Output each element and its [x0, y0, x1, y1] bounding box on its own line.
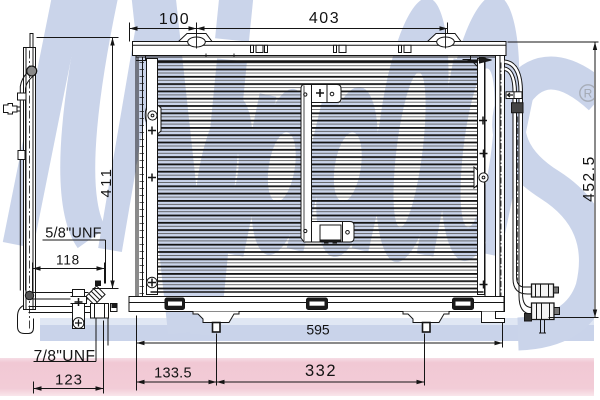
- svg-text:7/8"UNF: 7/8"UNF: [34, 348, 96, 365]
- svg-text:118: 118: [56, 253, 80, 268]
- svg-text:411: 411: [99, 167, 115, 198]
- svg-text:100: 100: [159, 11, 190, 28]
- svg-text:332: 332: [305, 362, 337, 380]
- svg-text:452.5: 452.5: [581, 155, 598, 202]
- svg-text:R: R: [584, 87, 593, 101]
- svg-text:5/8"UNF: 5/8"UNF: [45, 226, 102, 242]
- svg-text:595: 595: [306, 322, 330, 338]
- svg-text:133.5: 133.5: [154, 366, 192, 382]
- svg-text:403: 403: [309, 10, 340, 27]
- svg-text:123: 123: [55, 372, 83, 389]
